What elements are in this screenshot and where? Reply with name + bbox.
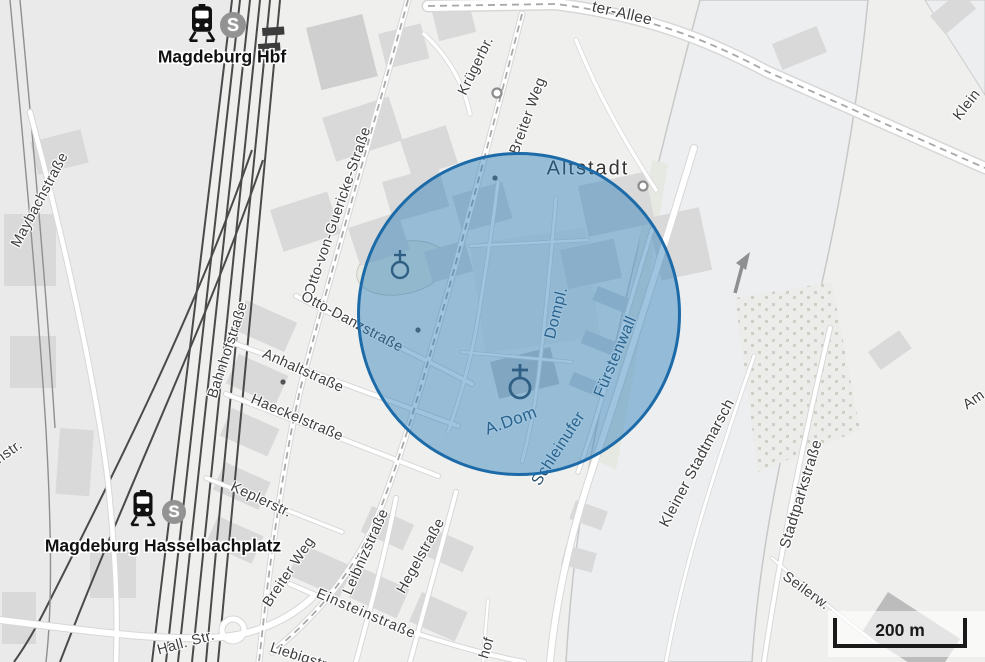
station-label-hasselbachplatz: Magdeburg Hasselbachplatz — [45, 536, 281, 557]
label-hall-str: Hall. Str. — [156, 628, 217, 659]
label-stadtparkstrasse: Stadtparkstraße — [776, 438, 825, 551]
train-icon — [188, 4, 216, 44]
scale-bar: 200 m — [828, 611, 985, 657]
map-canvas[interactable]: ter-AlleeKrügerbr.Breiter WegAltstadtKle… — [0, 0, 985, 662]
label-keplerstrasse: Keplerstr. — [228, 479, 294, 521]
label-am: Am — [960, 387, 985, 413]
scale-bar-bracket: 200 m — [833, 618, 967, 648]
label-maybachstrasse: Maybachstraße — [8, 150, 71, 250]
label-bahnhofstrasse: Bahnhofstraße — [205, 300, 251, 400]
label-kleiner-stadtmarsch: Kleiner Stadtmarsch — [656, 396, 738, 530]
label-ter-allee: ter-Allee — [590, 0, 654, 30]
scale-bar-label: 200 m — [875, 618, 925, 642]
label-klein: Klein — [950, 87, 984, 124]
label-hegelstrasse: Hegelstraße — [394, 516, 448, 597]
label-einsteinstrasse: Einsteinstraße — [314, 586, 418, 642]
label-anhaltstrasse: Anhaltstraße — [260, 346, 346, 396]
station-label-hbf: Magdeburg Hbf — [158, 47, 286, 68]
label-leibnizstrasse: Leibnizstraße — [340, 507, 392, 598]
label-breiter-weg-north: Breiter Weg — [507, 75, 550, 156]
sbahn-icon: S — [162, 500, 186, 524]
label-haeckelstrasse: Haeckelstraße — [248, 391, 345, 444]
label-kruegerbruecke: Krügerbr. — [455, 34, 497, 98]
label-hof: hof — [476, 635, 498, 660]
label-liebigstrasse: Liebigstr. — [268, 640, 332, 662]
sbahn-icon: S — [220, 12, 246, 38]
train-icon — [130, 490, 156, 528]
label-seilerweg: Seilerw. — [779, 569, 832, 614]
radius-overlay-circle — [357, 152, 681, 476]
label-nstr: nstr. — [0, 437, 26, 467]
